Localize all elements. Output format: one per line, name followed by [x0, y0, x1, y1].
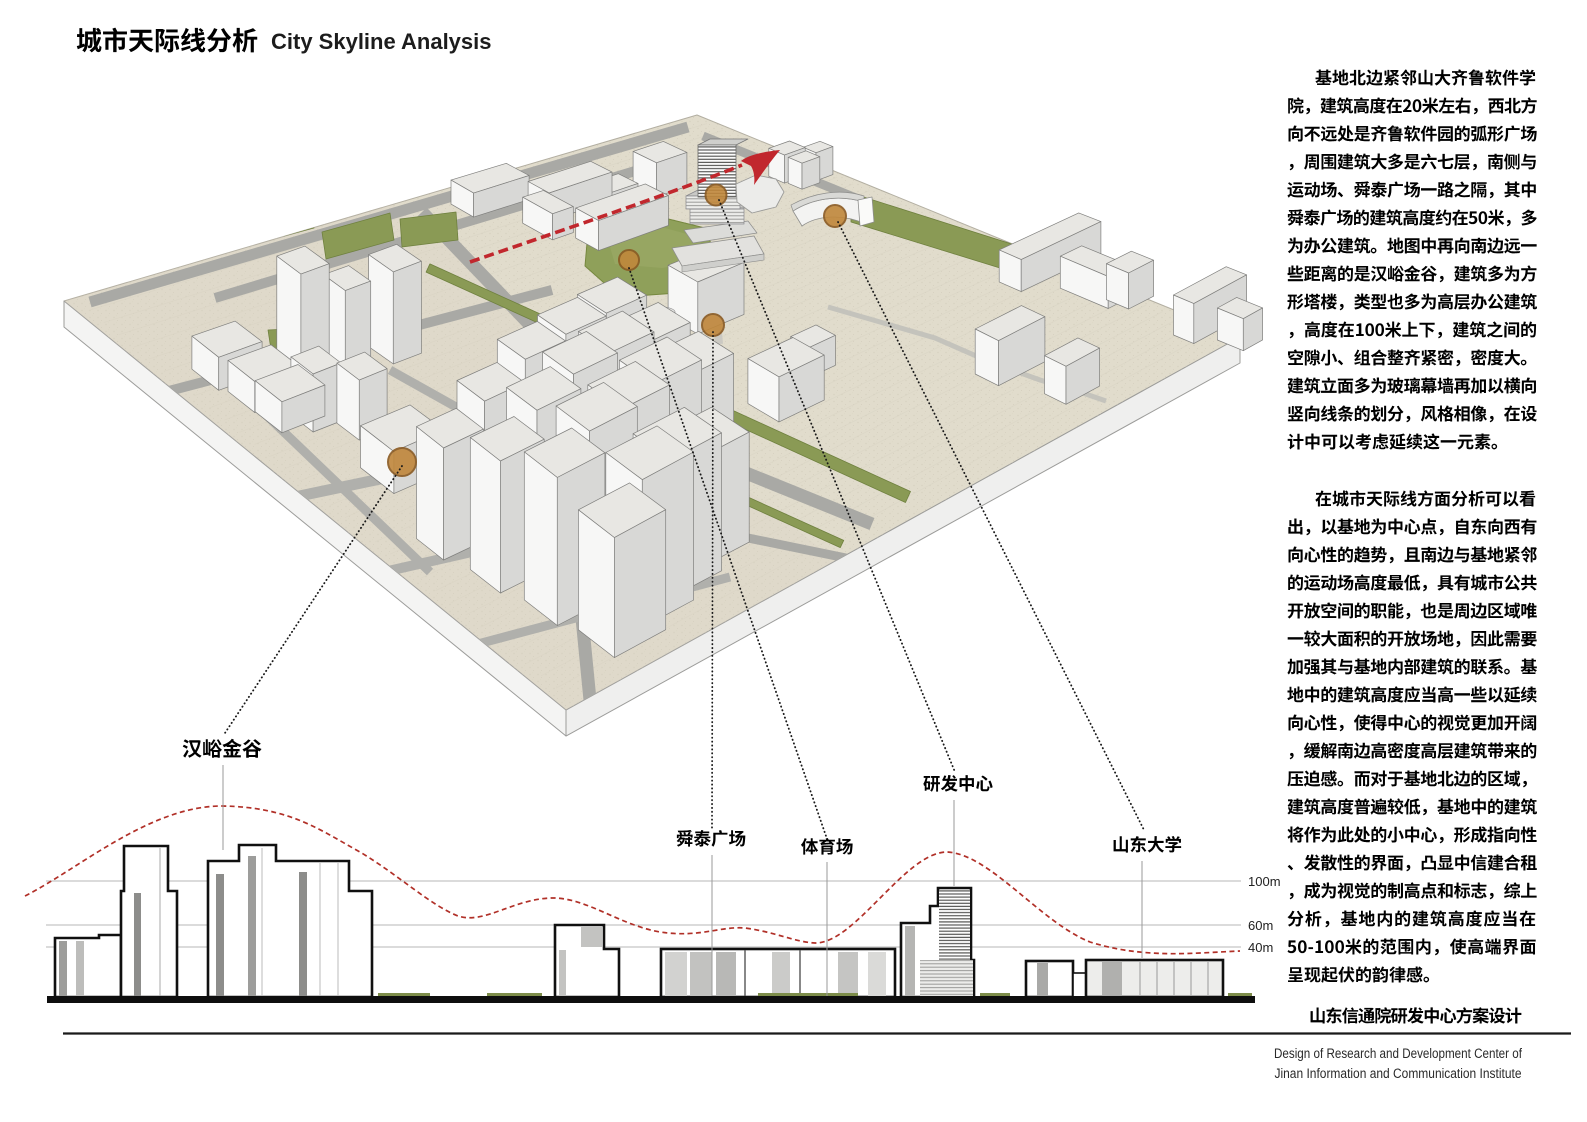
svg-text:Design of Research and Develop: Design of Research and Development Cente… [1274, 1046, 1522, 1061]
svg-text:40m: 40m [1248, 940, 1273, 955]
svg-text:60m: 60m [1248, 918, 1273, 933]
svg-text:100m: 100m [1248, 874, 1281, 889]
svg-text:Jinan Information and Communic: Jinan Information and Communication Inst… [1275, 1066, 1522, 1081]
svg-text:City Skyline Analysis: City Skyline Analysis [271, 29, 492, 54]
